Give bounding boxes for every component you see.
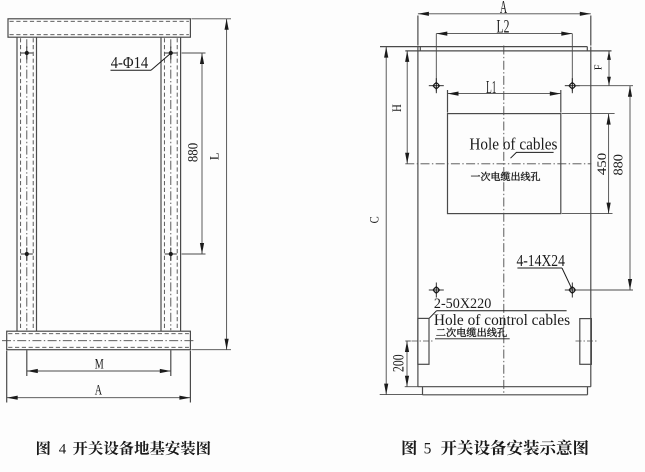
svg-text:L: L [207,152,222,160]
svg-text:450: 450 [595,153,609,175]
svg-text:L2: L2 [497,18,510,38]
svg-text:M: M [95,356,104,372]
svg-text:F: F [594,64,605,70]
svg-text:Hole of control cables: Hole of control cables [434,312,570,329]
svg-text:L1: L1 [486,77,496,97]
svg-text:4-14X24: 4-14X24 [516,251,565,270]
svg-text:4: 4 [59,441,67,457]
svg-text:C: C [366,216,381,223]
svg-text:880: 880 [611,154,626,176]
svg-text:5: 5 [424,440,432,457]
svg-text:A: A [95,382,102,398]
svg-text:200: 200 [390,354,407,372]
svg-text:4-Φ14: 4-Φ14 [111,53,149,72]
svg-text:Hole of cables: Hole of cables [469,135,557,154]
svg-text:H: H [389,104,404,112]
svg-text:A: A [500,0,507,17]
svg-text:880: 880 [186,143,202,162]
svg-text:2-50X220: 2-50X220 [434,296,491,312]
